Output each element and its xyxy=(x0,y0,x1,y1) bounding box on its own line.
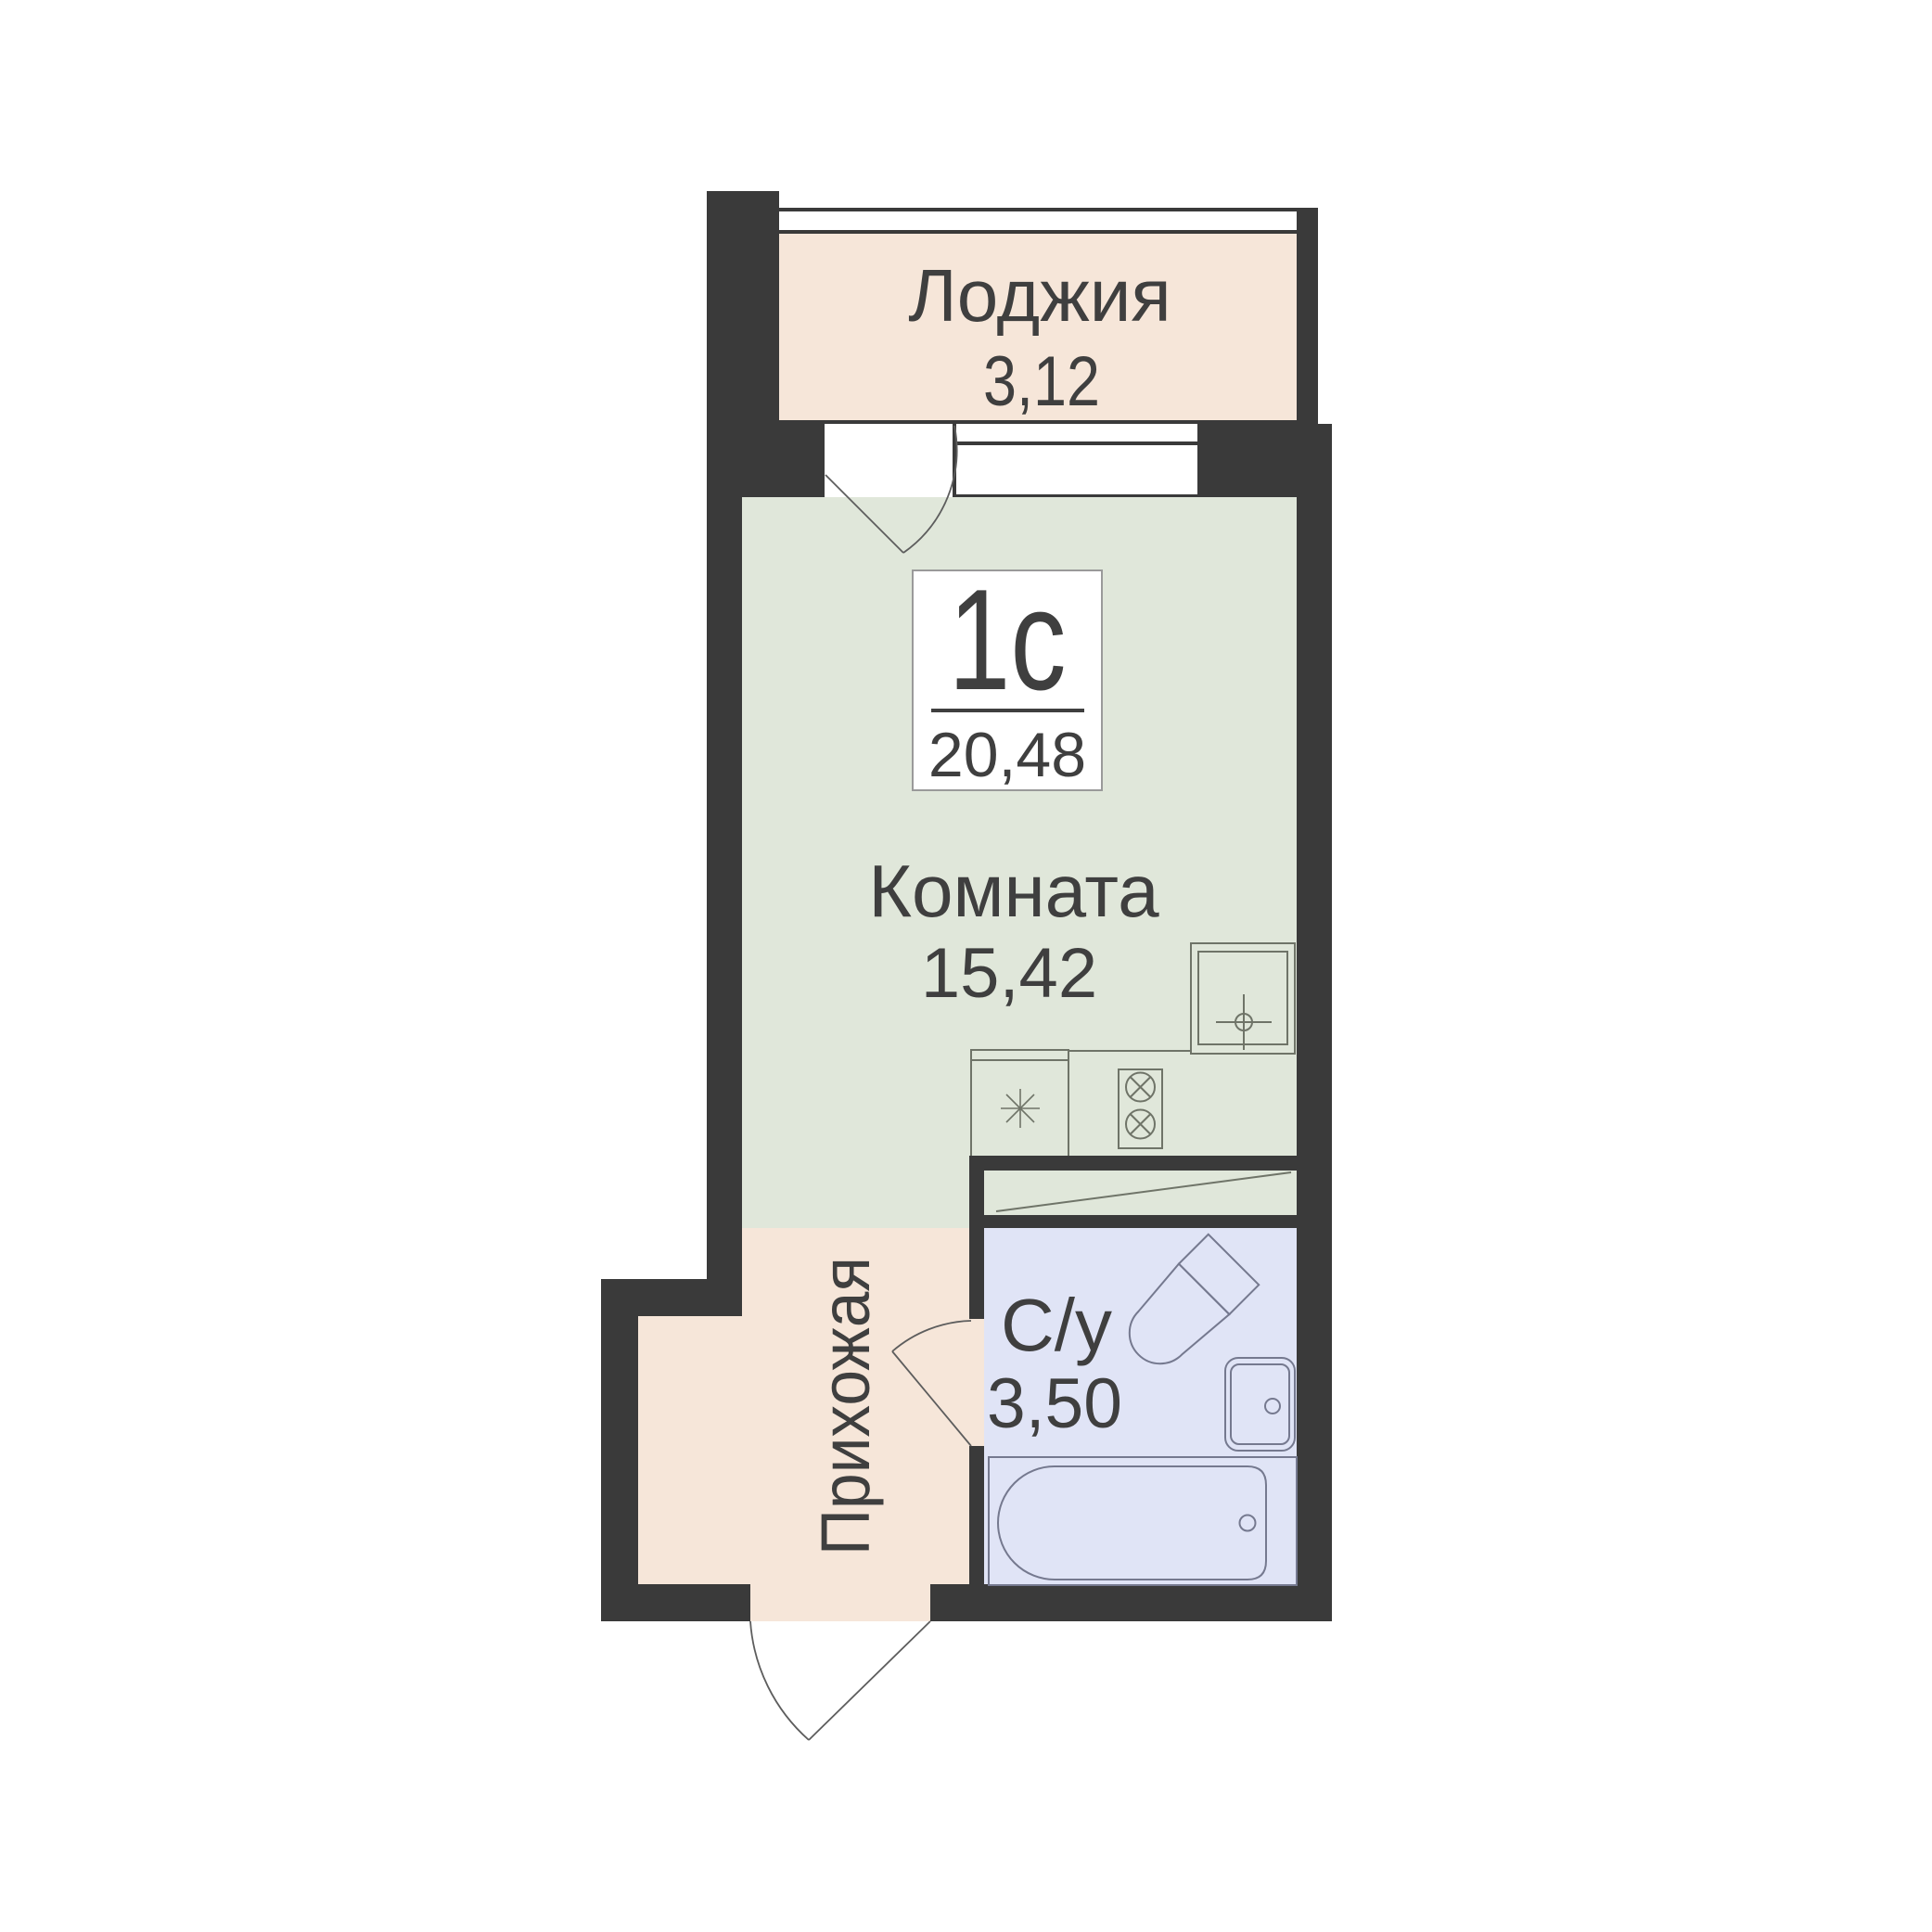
svg-text:20,48: 20,48 xyxy=(928,720,1086,790)
svg-text:15,42: 15,42 xyxy=(921,934,1097,1013)
svg-text:Лоджия: Лоджия xyxy=(908,254,1171,337)
svg-text:3,12: 3,12 xyxy=(983,342,1100,421)
svg-text:1с: 1с xyxy=(949,559,1067,720)
svg-text:С/у: С/у xyxy=(1001,1284,1112,1366)
svg-text:Прихожая: Прихожая xyxy=(807,1257,884,1555)
svg-text:Комната: Комната xyxy=(868,850,1159,932)
svg-text:3,50: 3,50 xyxy=(987,1364,1122,1443)
